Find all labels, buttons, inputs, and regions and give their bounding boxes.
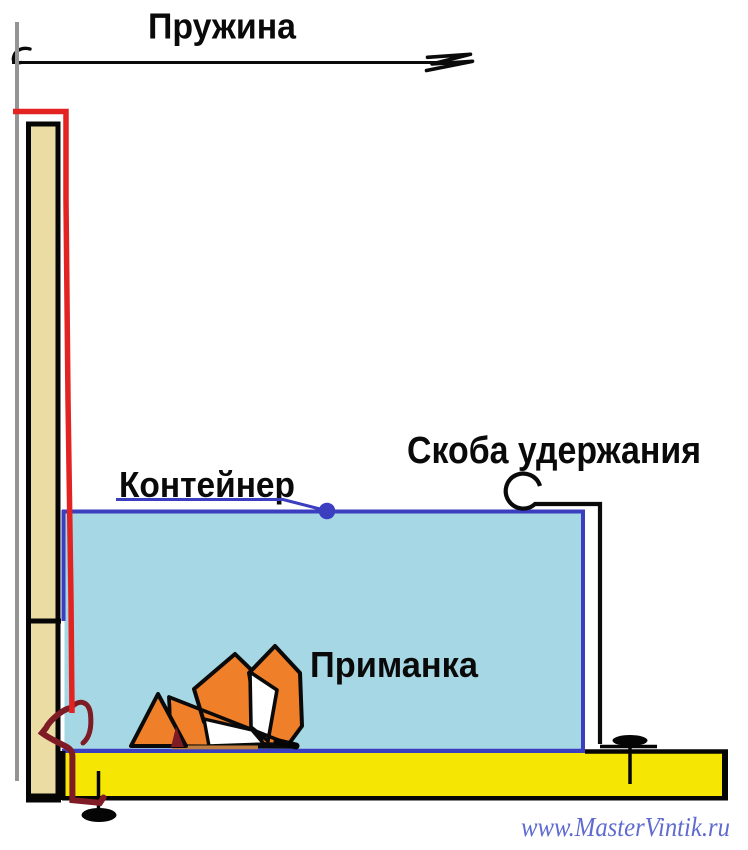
svg-text:www.MasterVintik.ru: www.MasterVintik.ru [521,812,730,842]
svg-text:Скоба удержания: Скоба удержания [407,430,701,472]
svg-text:Приманка: Приманка [310,644,479,685]
svg-text:Пружина: Пружина [148,6,297,47]
